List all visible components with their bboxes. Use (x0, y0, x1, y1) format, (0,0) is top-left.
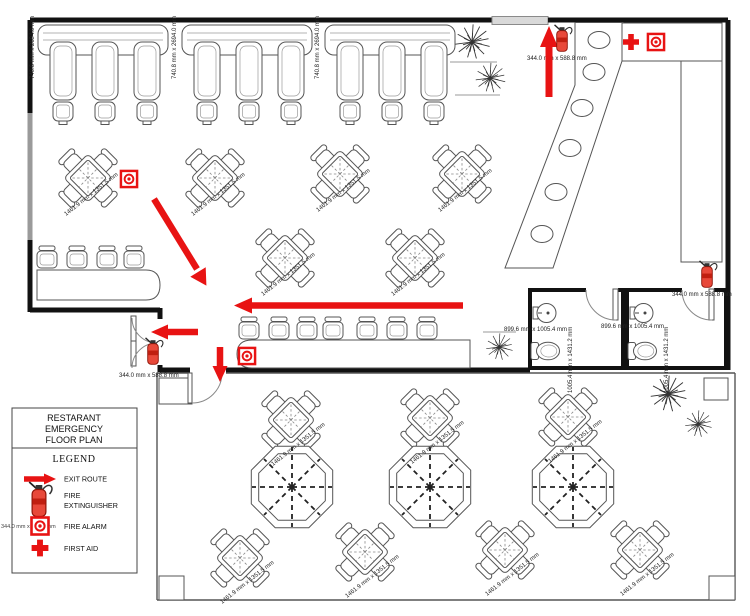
restroom-dimension-label: 1005.4 mm x 1431.2 mm (664, 327, 670, 393)
service-counters-top-right (622, 23, 722, 262)
bar-stool (588, 32, 610, 49)
fire-alarm-icon (239, 348, 255, 364)
restaurant-emergency-floor-plan: 740.6 mm x 2694.0 mm 740.8 mm x 2694.0 m… (0, 0, 750, 616)
counter-chair (387, 317, 407, 339)
fire-extinguisher-icon (700, 261, 717, 287)
fire-alarm-icon (648, 34, 664, 50)
plan-title-line: FLOOR PLAN (45, 435, 102, 445)
counter-chair (37, 246, 57, 268)
legend: RESTARANT EMERGENCY FLOOR PLAN LEGEND EX… (1, 408, 137, 573)
fire-alarm-icon (32, 518, 49, 535)
legend-heading: LEGEND (53, 454, 96, 465)
counter-chair (124, 246, 144, 268)
counter-chair (239, 317, 259, 339)
plan-title-line: EMERGENCY (45, 424, 103, 434)
booth-dimension-label: 740.8 mm x 2694.0 mm (315, 16, 321, 79)
door-dimension-label: 344.0 mm x 588.8 mm (672, 292, 732, 298)
octagon-table (251, 446, 332, 527)
octagon-table (532, 446, 613, 527)
bar-stool (531, 226, 553, 243)
dining-table-4-seat (415, 127, 508, 220)
bar-stool (583, 64, 605, 81)
top-exit-door-slab (492, 17, 548, 25)
restroom-1-door (613, 289, 618, 320)
booth-group-2 (182, 25, 312, 125)
toilet (628, 342, 657, 360)
legend-label: FIRST AID (64, 544, 98, 553)
sink (630, 304, 653, 323)
bar-stool (545, 184, 567, 201)
counter-chair (67, 246, 87, 268)
legend-label: FIRE ALARM (64, 522, 107, 531)
booth-dimension-label: 740.8 mm x 2694.0 mm (172, 16, 178, 79)
plant (456, 24, 490, 58)
plant (486, 333, 512, 359)
counter-chair (297, 317, 317, 339)
fire-extinguisher-icon (555, 25, 572, 51)
legend-label: FIRE (64, 491, 81, 500)
plant (685, 410, 711, 436)
plant (476, 63, 505, 92)
exit-route-arrow-left (151, 325, 198, 340)
octagon-table (389, 446, 470, 527)
dining-table-4-seat (368, 211, 461, 304)
door-dimension-label: 344.0 mm x 588.8 mm (119, 373, 179, 379)
restroom-dimension-label: 899.6 mm x 1005.4 mm (601, 324, 664, 330)
sink (533, 304, 556, 323)
left-counter-seating (37, 246, 160, 300)
restroom-dimension-label: 1005.4 mm x 1431.2 mm (568, 327, 574, 393)
legend-body-box (12, 448, 137, 573)
corner-stand (159, 576, 184, 600)
exit-door-leaf (131, 341, 136, 366)
corner-stand (704, 378, 728, 400)
door-dimension-label: 344.0 mm x 588.8 mm (527, 56, 587, 62)
booth-group-1 (38, 25, 168, 125)
counter-chair (269, 317, 289, 339)
banquet-room-door (188, 373, 192, 403)
toilet (531, 342, 560, 360)
corner-stand (159, 378, 192, 404)
counter-chair (323, 317, 343, 339)
counter-chair (417, 317, 437, 339)
legend-label: EXIT ROUTE (64, 475, 107, 484)
counter-chair (97, 246, 117, 268)
fire-alarm-icon (121, 171, 137, 187)
booth-dimension-label: 740.6 mm x 2694.0 mm (30, 16, 36, 79)
legend-label: EXTINGUISHER (64, 501, 118, 510)
dining-table-4-seat (168, 131, 261, 224)
bar-stool (571, 100, 593, 117)
corner-stand (709, 576, 735, 600)
long-counter-seating (237, 317, 470, 368)
counter-chair (357, 317, 377, 339)
restroom-dimension-label: 899.6 mm x 1005.4 mm (504, 327, 567, 333)
booth-group-3 (325, 25, 455, 125)
floor-plan-canvas: 740.6 mm x 2694.0 mm 740.8 mm x 2694.0 m… (0, 0, 750, 616)
dining-table-4-seat (293, 127, 386, 220)
exit-route-arrow-down (213, 347, 228, 382)
bar-stool (559, 140, 581, 157)
plan-title-line: RESTARANT (47, 413, 101, 423)
exit-route-arrow-long-left (234, 298, 463, 314)
booth-seating (38, 25, 455, 125)
dining-table-4-seat (238, 211, 331, 304)
